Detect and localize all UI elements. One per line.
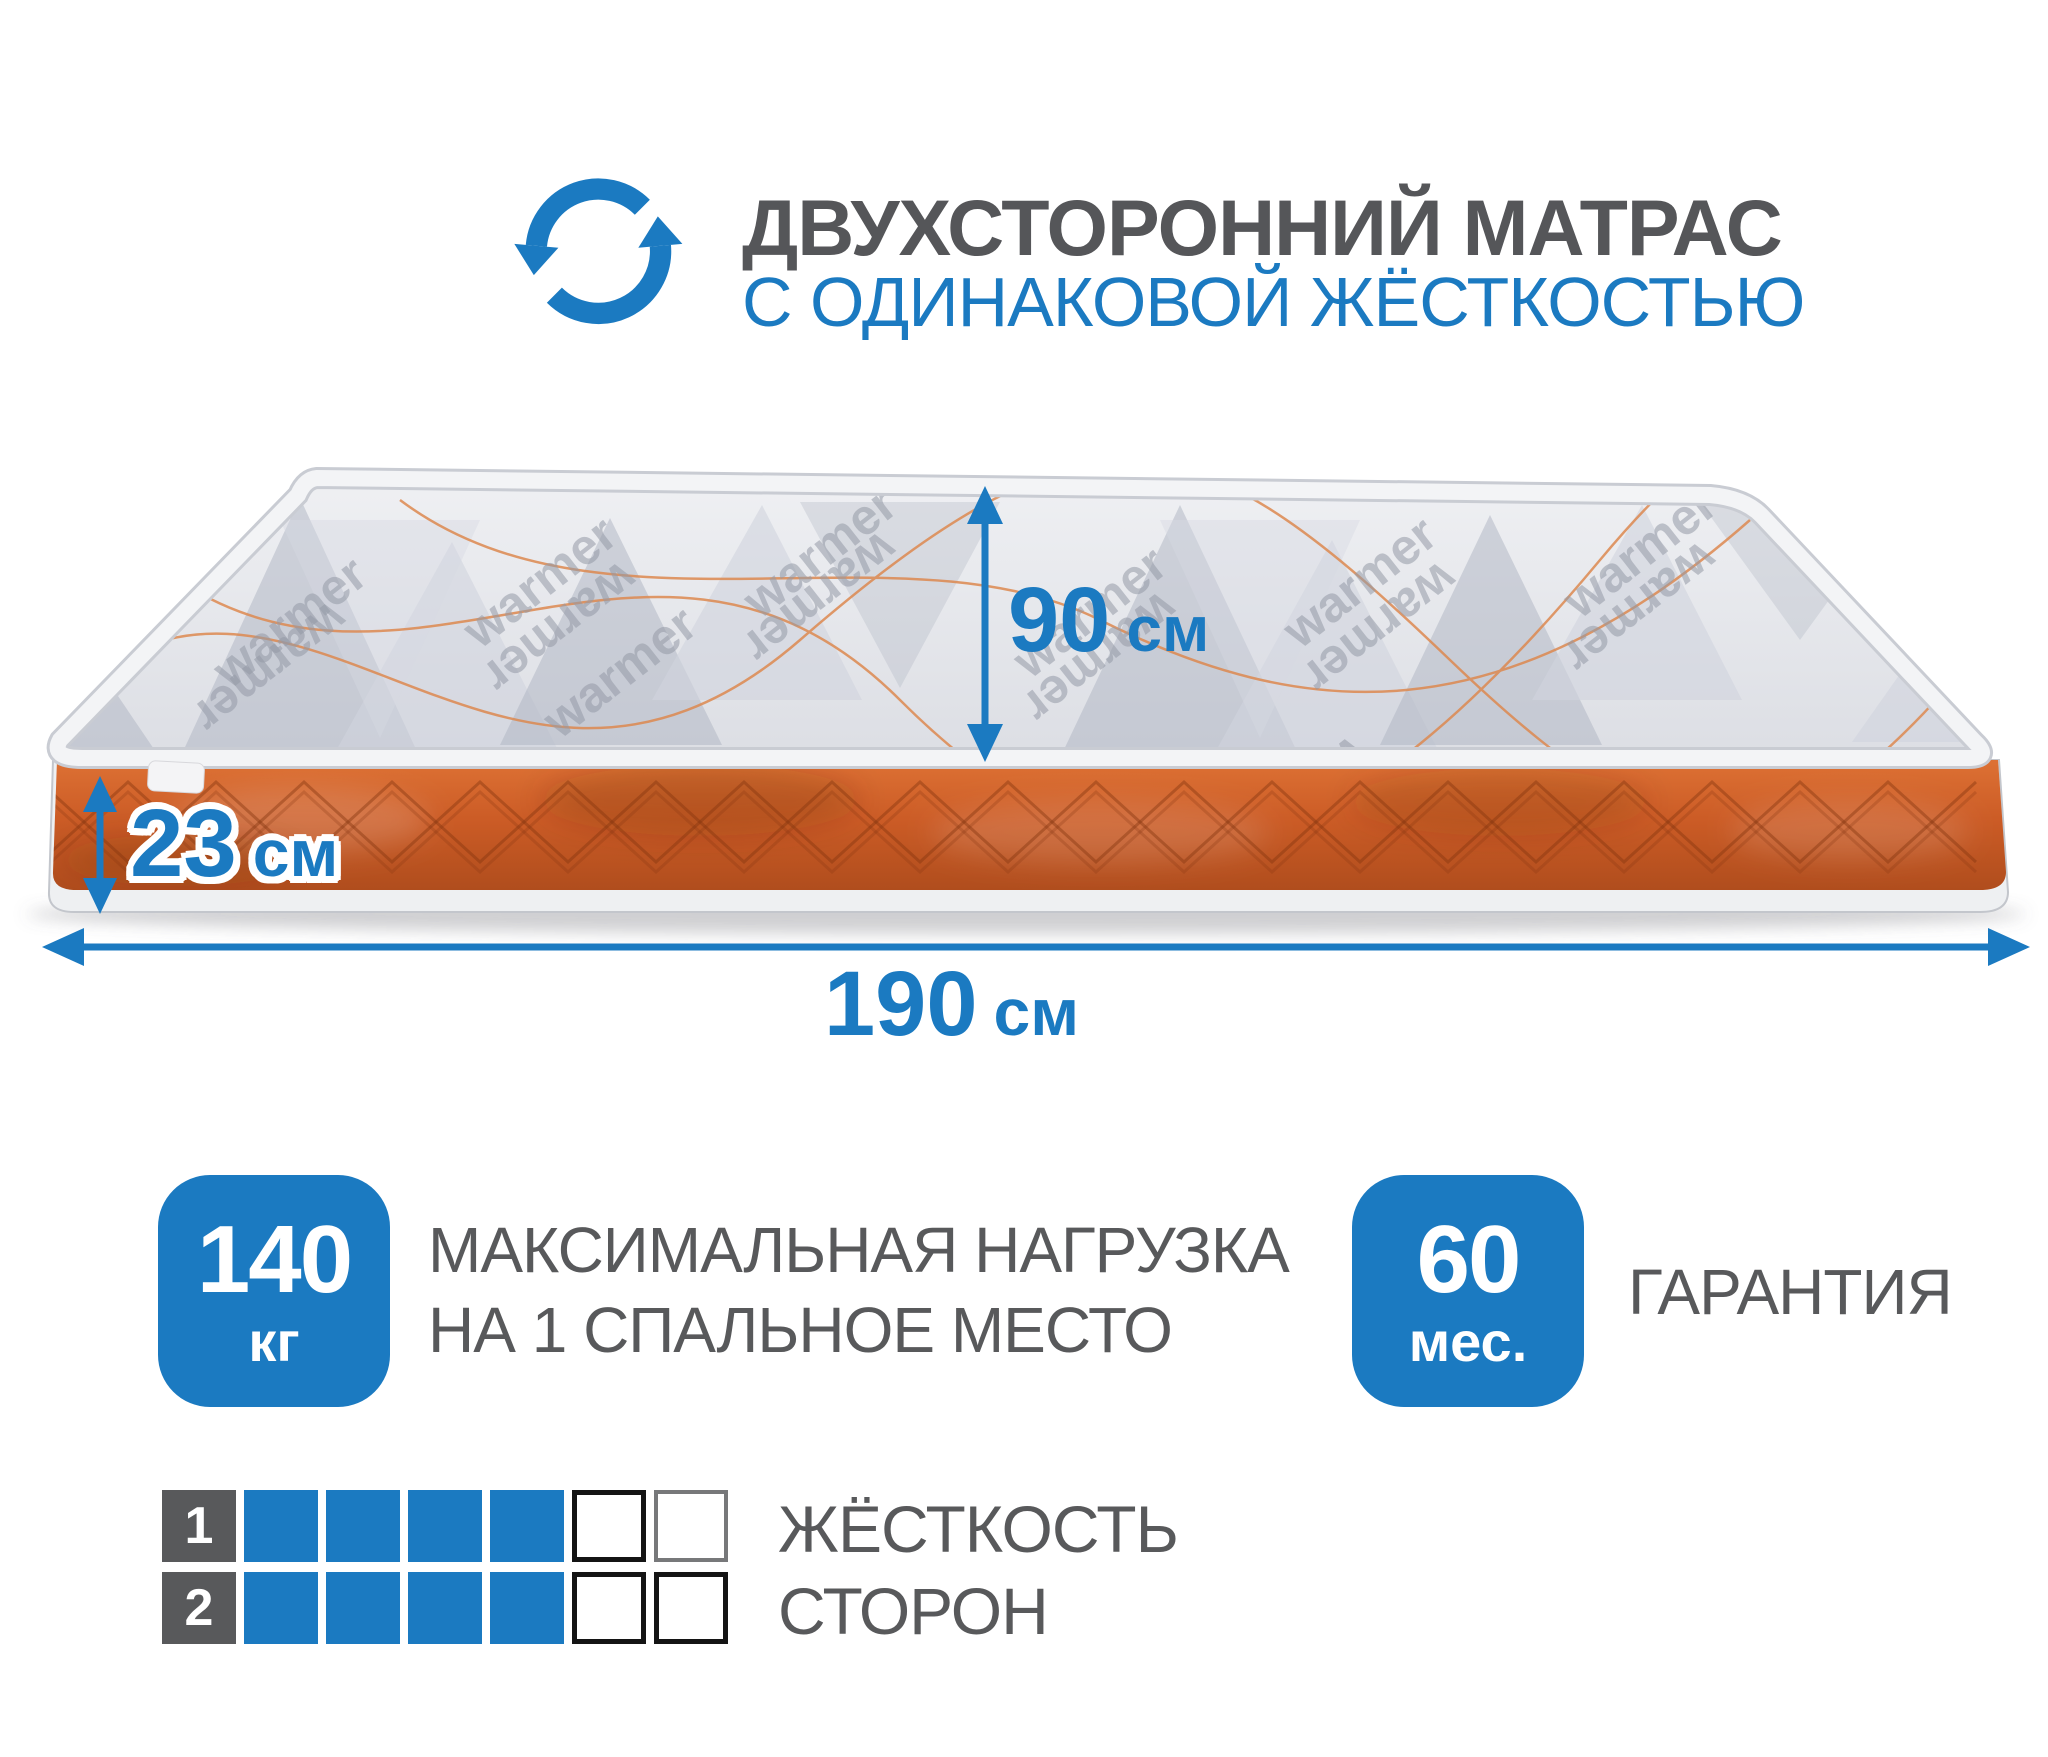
hardness-cell-filled [490, 1490, 564, 1562]
width-unit: см [1126, 597, 1209, 661]
thickness-unit: см [253, 820, 339, 886]
length-unit: см [994, 979, 1080, 1045]
width-dimension-label: 90 см [1008, 574, 1209, 666]
thickness-dimension-label: 23 см [130, 796, 338, 892]
hardness-cell-empty [654, 1572, 728, 1644]
hardness-cell-filled [244, 1490, 318, 1562]
hardness-cell-filled [490, 1572, 564, 1644]
max-load-badge: 140 кг [158, 1175, 390, 1407]
hardness-scale: 12 [162, 1490, 728, 1654]
hardness-row-number: 1 [162, 1490, 236, 1562]
hardness-cell-empty [654, 1490, 728, 1562]
brand-watermark: warmer [1822, 455, 1997, 609]
warranty-badge: 60 мес. [1352, 1175, 1584, 1407]
max-load-value: 140 [197, 1212, 351, 1308]
thickness-value: 23 [130, 796, 237, 892]
hardness-cell-filled [244, 1572, 318, 1644]
hardness-row-number: 2 [162, 1572, 236, 1644]
hardness-cell-filled [408, 1490, 482, 1562]
max-load-label-line2: НА 1 СПАЛЬНОЕ МЕСТО [428, 1290, 1289, 1370]
hardness-cell-empty [572, 1572, 646, 1644]
max-load-label: МАКСИМАЛЬНАЯ НАГРУЗКА НА 1 СПАЛЬНОЕ МЕСТ… [428, 1210, 1289, 1370]
hardness-cell-filled [326, 1490, 400, 1562]
hardness-row-2: 2 [162, 1572, 728, 1644]
width-value: 90 [1008, 574, 1110, 666]
hardness-scale-label-line1: ЖЁСТКОСТЬ [778, 1496, 1178, 1562]
warranty-value: 60 [1417, 1212, 1520, 1308]
hardness-cell-filled [326, 1572, 400, 1644]
length-dimension-label: 190 см [824, 958, 1079, 1050]
hardness-row-1: 1 [162, 1490, 728, 1562]
length-value: 190 [824, 958, 978, 1050]
warranty-label: ГАРАНТИЯ [1628, 1252, 1952, 1332]
hardness-scale-label-line2: СТОРОН [778, 1578, 1048, 1644]
mattress-illustration: warmerwarmerwarmerwarmerwarmerwarmerwarm… [0, 0, 2048, 1100]
max-load-unit: кг [248, 1314, 299, 1370]
max-load-label-line1: МАКСИМАЛЬНАЯ НАГРУЗКА [428, 1210, 1289, 1290]
mattress-label-tag [147, 761, 204, 794]
hardness-cell-filled [408, 1572, 482, 1644]
hardness-cell-empty [572, 1490, 646, 1562]
infographic-canvas: ДВУХСТОРОННИЙ МАТРАС С ОДИНАКОВОЙ ЖЁСТКО… [0, 0, 2048, 1757]
warranty-unit: мес. [1409, 1314, 1528, 1370]
